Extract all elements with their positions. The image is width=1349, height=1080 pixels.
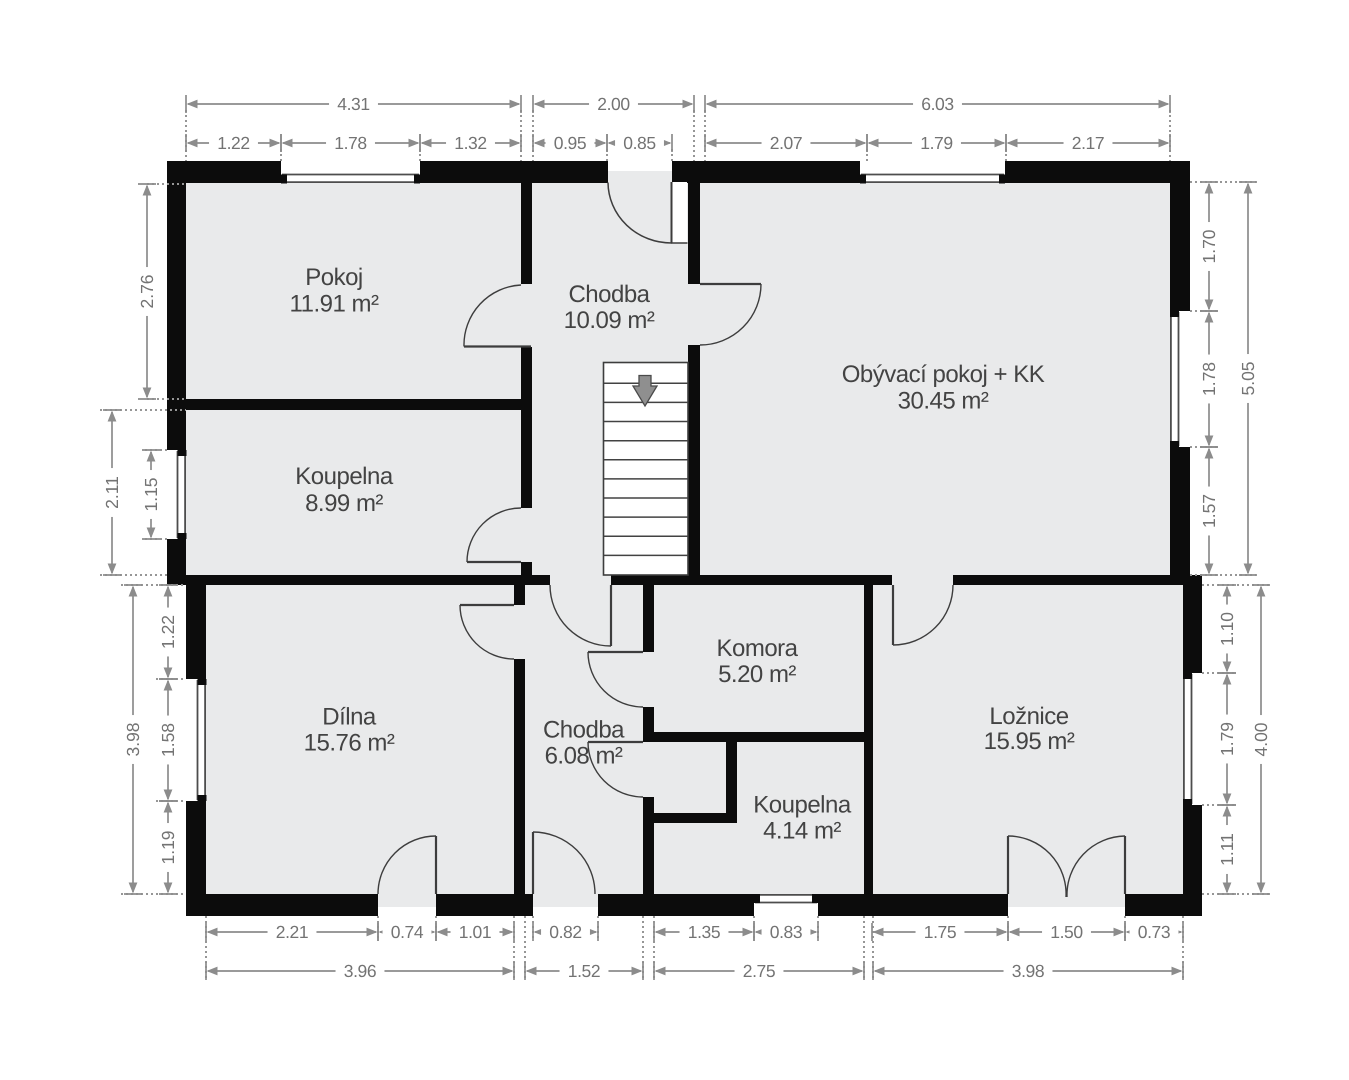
svg-text:Dílna: Dílna	[322, 704, 377, 731]
svg-text:Chodba: Chodba	[568, 281, 650, 308]
svg-text:1.50: 1.50	[1050, 922, 1083, 942]
svg-text:1.35: 1.35	[688, 922, 720, 942]
svg-text:0.95: 0.95	[554, 133, 586, 153]
svg-text:Koupelna: Koupelna	[753, 792, 852, 819]
svg-text:3.98: 3.98	[1012, 961, 1044, 981]
svg-text:8.99 m²: 8.99 m²	[305, 490, 383, 517]
svg-text:4.31: 4.31	[337, 94, 369, 114]
svg-text:0.82: 0.82	[549, 922, 581, 942]
svg-text:1.22: 1.22	[158, 615, 178, 649]
svg-text:2.76: 2.76	[137, 274, 157, 308]
svg-text:Chodba: Chodba	[543, 717, 625, 744]
svg-text:1.11: 1.11	[1217, 833, 1237, 866]
svg-text:0.85: 0.85	[623, 133, 655, 153]
svg-text:6.03: 6.03	[921, 94, 953, 114]
svg-text:1.22: 1.22	[217, 133, 249, 153]
svg-text:1.10: 1.10	[1217, 612, 1237, 646]
svg-text:4.00: 4.00	[1251, 722, 1271, 756]
svg-text:1.78: 1.78	[1199, 362, 1219, 396]
svg-text:10.09 m²: 10.09 m²	[564, 307, 655, 334]
svg-text:1.01: 1.01	[459, 922, 491, 942]
svg-text:1.57: 1.57	[1199, 494, 1219, 528]
svg-text:11.91 m²: 11.91 m²	[290, 291, 379, 318]
svg-text:3.96: 3.96	[344, 961, 376, 981]
svg-text:0.83: 0.83	[770, 922, 802, 942]
svg-text:1.58: 1.58	[158, 723, 178, 757]
svg-text:1.19: 1.19	[158, 830, 178, 864]
svg-text:2.17: 2.17	[1072, 133, 1104, 153]
svg-text:Komora: Komora	[716, 635, 798, 662]
svg-text:1.52: 1.52	[568, 961, 600, 981]
svg-text:1.32: 1.32	[454, 133, 486, 153]
svg-text:Koupelna: Koupelna	[295, 463, 394, 490]
svg-text:15.95 m²: 15.95 m²	[984, 728, 1075, 755]
svg-text:3.98: 3.98	[123, 722, 143, 756]
svg-text:30.45 m²: 30.45 m²	[898, 388, 989, 415]
svg-text:Ložnice: Ložnice	[989, 703, 1068, 730]
svg-text:2.11: 2.11	[102, 476, 122, 509]
svg-text:1.78: 1.78	[334, 133, 366, 153]
svg-text:Pokoj: Pokoj	[305, 264, 363, 291]
svg-text:2.21: 2.21	[276, 922, 308, 942]
svg-text:2.75: 2.75	[743, 961, 775, 981]
svg-text:5.20 m²: 5.20 m²	[718, 661, 796, 688]
svg-text:1.75: 1.75	[924, 922, 956, 942]
svg-text:1.70: 1.70	[1199, 229, 1219, 263]
svg-text:1.79: 1.79	[1217, 722, 1237, 756]
svg-text:Obývací pokoj + KK: Obývací pokoj + KK	[842, 361, 1045, 388]
svg-text:2.00: 2.00	[597, 94, 630, 114]
svg-text:4.14 m²: 4.14 m²	[763, 818, 841, 845]
svg-text:5.05: 5.05	[1238, 361, 1258, 395]
svg-text:0.74: 0.74	[391, 922, 424, 942]
svg-text:6.08 m²: 6.08 m²	[545, 743, 623, 770]
svg-text:15.76 m²: 15.76 m²	[304, 730, 395, 757]
svg-text:0.73: 0.73	[1138, 922, 1170, 942]
svg-text:1.15: 1.15	[141, 477, 161, 511]
svg-text:2.07: 2.07	[770, 133, 802, 153]
svg-text:1.79: 1.79	[920, 133, 952, 153]
